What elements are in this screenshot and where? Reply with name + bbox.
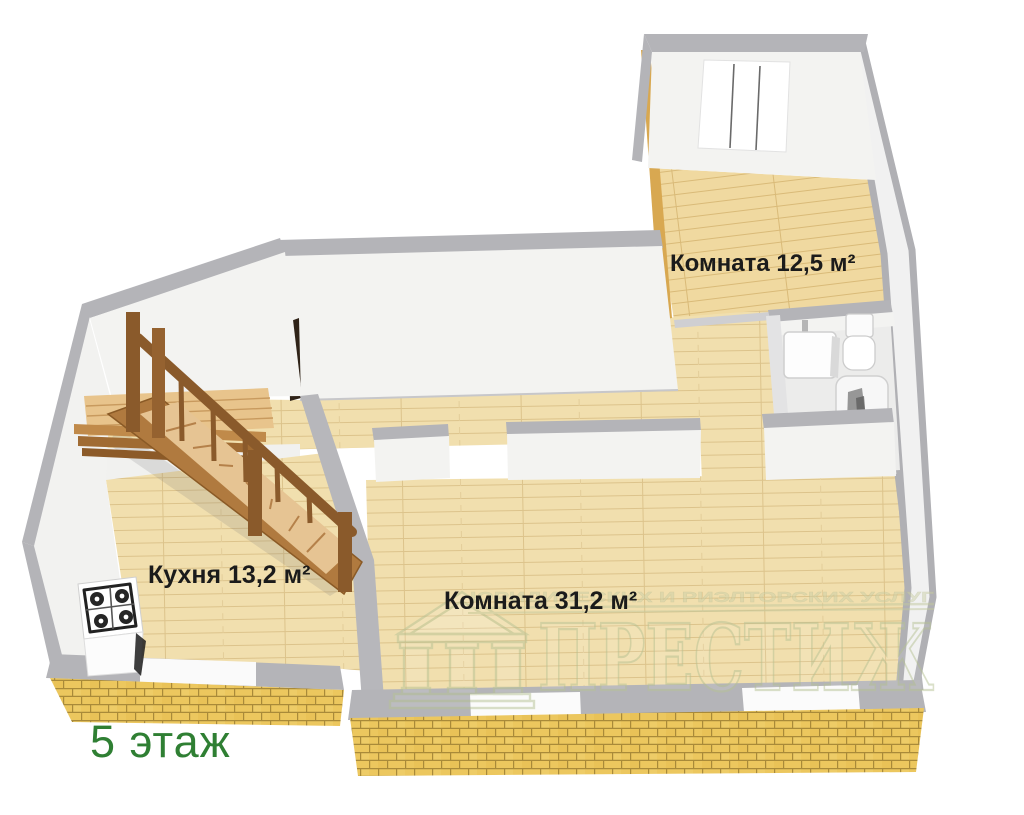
toilet [843,314,875,370]
stair-post-2 [152,328,165,438]
wall-s2-face [507,430,701,480]
stair-post-3 [248,450,262,536]
central-wall [278,230,678,401]
window [698,60,790,152]
room-31-2-label: Комната 31,2 м² [444,587,637,616]
kitchen-label: Кухня 13,2 м² [148,561,310,590]
doorway-floor [700,428,768,482]
kitchen-window-gap [140,658,256,686]
big-room-brick-wall [350,708,924,776]
watermark-title: ПРЕСТИЖ [538,604,934,712]
room-12-5-label: Комната 12,5 м² [670,250,855,278]
wall-s1-face [374,436,450,482]
central-wall-face [282,246,678,400]
stair-post-4 [338,512,352,592]
stair-post-1 [126,312,140,432]
floor-plan-drawing: ЮРИДИЧЕСКИХ И РИЭЛТОРСКИХ УСЛУГ ПРЕСТИЖ [0,0,1024,815]
gas-stove-icon [78,577,146,676]
room-12-5-top-wall [644,34,868,52]
floor-plan-page: ЮРИДИЧЕСКИХ И РИЭЛТОРСКИХ УСЛУГ ПРЕСТИЖ … [0,0,1024,815]
stove-front [84,632,143,676]
floor-number-label: 5 этаж [90,716,231,768]
wall-s3-face [764,422,896,480]
room-12-5-floor [650,168,890,320]
